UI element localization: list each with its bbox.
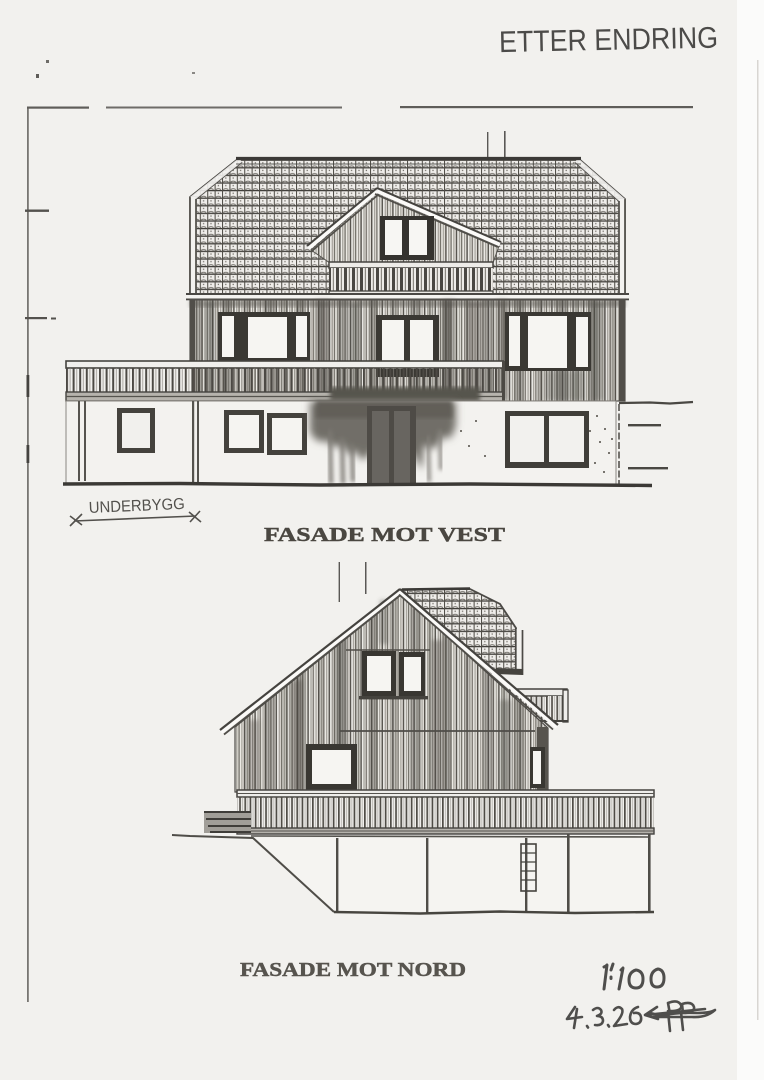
- svg-text:FASADE MOT NORD: FASADE MOT NORD: [240, 959, 466, 981]
- svg-text:FASADE MOT VEST: FASADE MOT VEST: [264, 524, 505, 546]
- svg-text:ETTER ENDRING: ETTER ENDRING: [499, 22, 719, 60]
